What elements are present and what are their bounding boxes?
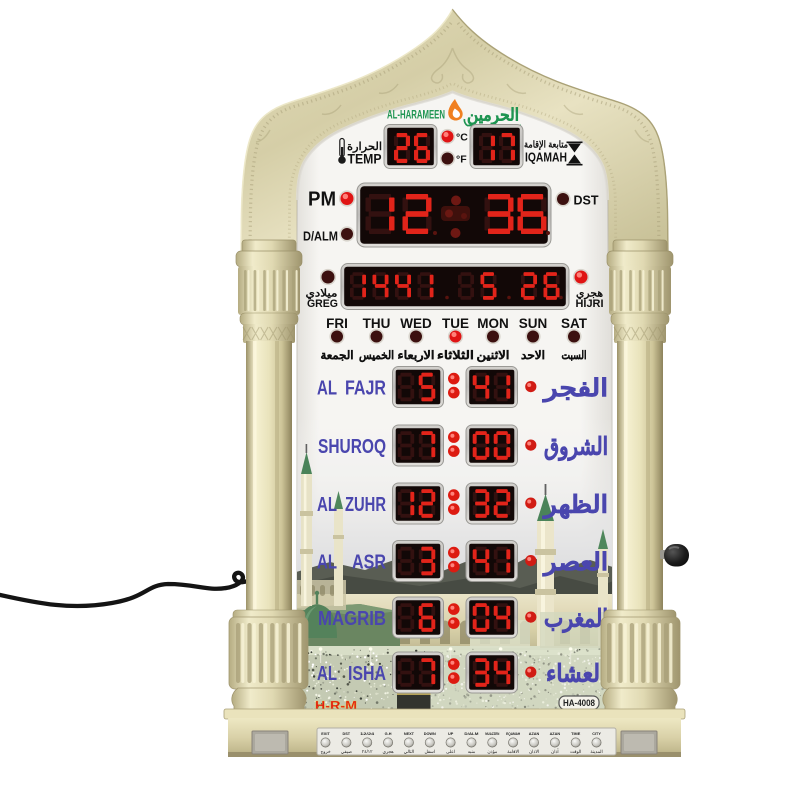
svg-text:°F: °F xyxy=(456,154,467,166)
svg-text:التالي: التالي xyxy=(404,749,414,754)
svg-text:هجري: هجري xyxy=(383,749,394,754)
svg-text:SAT: SAT xyxy=(561,316,588,331)
svg-text:EXIT: EXIT xyxy=(321,732,330,736)
svg-text:HA-4008: HA-4008 xyxy=(563,698,595,708)
svg-text:المدينة: المدينة xyxy=(590,749,602,754)
svg-text:الاثنين: الاثنين xyxy=(477,349,510,363)
svg-text:الثلاثاء: الثلاثاء xyxy=(437,349,474,362)
svg-text:AZAN: AZAN xyxy=(550,732,561,736)
svg-text:AL: AL xyxy=(317,662,337,685)
svg-text:الاحد: الاحد xyxy=(521,349,545,362)
svg-text:مؤذن: مؤذن xyxy=(487,749,497,754)
svg-text:الظهر: الظهر xyxy=(542,492,608,520)
svg-text:الشروق: الشروق xyxy=(544,434,608,462)
svg-text:AL-HARAMEEN: AL-HARAMEEN xyxy=(387,108,445,122)
svg-text:اسفل: اسفل xyxy=(425,749,435,754)
svg-text:CITY: CITY xyxy=(592,732,601,736)
svg-text:HIJRI: HIJRI xyxy=(576,298,604,310)
svg-text:GREG: GREG xyxy=(307,298,338,310)
svg-text:الفجر: الفجر xyxy=(542,375,608,403)
svg-text:DOWN: DOWN xyxy=(424,732,436,736)
svg-text:MAGRIB: MAGRIB xyxy=(318,607,386,630)
svg-text:أذان: أذان xyxy=(551,748,559,754)
svg-text:العصر: العصر xyxy=(542,549,608,577)
svg-text:EQAMAH: EQAMAH xyxy=(506,732,520,736)
svg-text:الاذان: الاذان xyxy=(529,749,539,754)
svg-text:منبه: منبه xyxy=(468,749,475,754)
svg-text:IQAMAH: IQAMAH xyxy=(525,150,567,165)
svg-text:TIME: TIME xyxy=(571,732,581,736)
svg-text:الجمعة: الجمعة xyxy=(321,349,354,362)
svg-text:AL: AL xyxy=(317,493,337,516)
svg-text:خروج: خروج xyxy=(320,749,330,754)
svg-text:FRI: FRI xyxy=(326,316,348,331)
svg-text:اعلى: اعلى xyxy=(446,749,455,754)
svg-text:صيفي: صيفي xyxy=(341,749,352,754)
svg-text:12/24: 12/24 xyxy=(360,732,375,736)
svg-text:ZUHR: ZUHR xyxy=(345,493,386,516)
svg-text:DST: DST xyxy=(574,193,599,208)
svg-text:MUAZZEN: MUAZZEN xyxy=(485,732,499,736)
svg-text:SUN: SUN xyxy=(519,316,548,331)
svg-text:ASR: ASR xyxy=(352,551,386,574)
svg-text:العشاء: العشاء xyxy=(546,661,606,688)
svg-text:SHUROQ: SHUROQ xyxy=(318,435,386,458)
svg-text:الحرمين: الحرمين xyxy=(467,106,519,126)
svg-text:D/ALM: D/ALM xyxy=(303,229,338,244)
svg-text:MON: MON xyxy=(477,316,509,331)
svg-text:THU: THU xyxy=(363,316,391,331)
svg-text:PM: PM xyxy=(308,189,336,211)
svg-text:الاقامة: الاقامة xyxy=(507,749,519,754)
svg-text:DST: DST xyxy=(343,732,351,736)
svg-text:AZAN: AZAN xyxy=(529,732,540,736)
svg-text:٢٤/١٢: ٢٤/١٢ xyxy=(362,749,373,754)
svg-text:D/ALM: D/ALM xyxy=(464,732,478,736)
svg-text:السبت: السبت xyxy=(562,349,587,362)
svg-text:FAJR: FAJR xyxy=(345,377,386,400)
svg-text:AL: AL xyxy=(317,377,337,400)
svg-text:ISHA: ISHA xyxy=(348,662,386,685)
svg-text:TUE: TUE xyxy=(442,316,469,331)
svg-text:°C: °C xyxy=(456,132,468,144)
svg-text:G-H: G-H xyxy=(385,732,392,736)
svg-text:WED: WED xyxy=(400,316,432,331)
svg-text:الاربعاء: الاربعاء xyxy=(398,349,435,363)
svg-text:UP: UP xyxy=(448,732,454,736)
svg-text:المغرب: المغرب xyxy=(544,606,608,634)
svg-text:الخميس: الخميس xyxy=(359,349,394,363)
svg-text:NEXT: NEXT xyxy=(404,732,415,736)
svg-text:AL: AL xyxy=(317,551,337,574)
svg-text:TEMP: TEMP xyxy=(348,152,382,167)
svg-text:الوقت: الوقت xyxy=(570,749,581,754)
